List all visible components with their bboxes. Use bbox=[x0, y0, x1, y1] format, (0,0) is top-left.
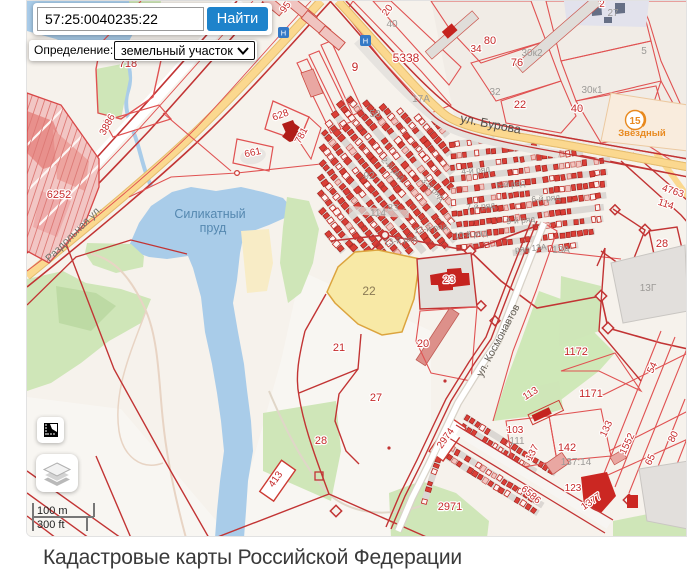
svg-text:15: 15 bbox=[629, 116, 641, 127]
svg-text:103: 103 bbox=[507, 425, 524, 436]
svg-text:5338: 5338 bbox=[393, 51, 420, 65]
svg-text:114: 114 bbox=[370, 208, 386, 219]
svg-text:21: 21 bbox=[333, 342, 345, 354]
svg-text:40: 40 bbox=[386, 19, 398, 30]
svg-text:20: 20 bbox=[417, 338, 429, 350]
svg-text:34: 34 bbox=[470, 44, 482, 55]
svg-text:300 ft: 300 ft bbox=[37, 519, 65, 531]
svg-text:5: 5 bbox=[641, 46, 647, 57]
svg-text:40: 40 bbox=[571, 103, 583, 115]
svg-text:17А: 17А bbox=[412, 94, 430, 105]
svg-text:111: 111 bbox=[509, 436, 525, 447]
svg-text:23: 23 bbox=[443, 274, 455, 286]
svg-text:27: 27 bbox=[607, 8, 619, 19]
svg-text:Н: Н bbox=[363, 37, 368, 46]
svg-text:22: 22 bbox=[362, 284, 376, 298]
svg-text:32: 32 bbox=[489, 87, 501, 98]
svg-text:123: 123 bbox=[565, 483, 582, 494]
svg-text:пруд: пруд bbox=[200, 221, 227, 235]
svg-text:1172: 1172 bbox=[564, 346, 588, 358]
svg-text:22: 22 bbox=[514, 99, 526, 111]
svg-text:27: 27 bbox=[370, 392, 382, 404]
svg-text:9: 9 bbox=[352, 60, 359, 74]
svg-text:2971: 2971 bbox=[438, 501, 462, 513]
svg-text:Н: Н bbox=[281, 29, 286, 38]
svg-text:13А: 13А bbox=[552, 245, 570, 256]
svg-text:50: 50 bbox=[369, 109, 381, 120]
svg-text:92: 92 bbox=[363, 171, 375, 182]
svg-text:30к1: 30к1 bbox=[581, 85, 602, 96]
svg-text:1171: 1171 bbox=[579, 388, 603, 400]
svg-text:28: 28 bbox=[656, 238, 668, 250]
svg-text:30к2: 30к2 bbox=[521, 48, 542, 59]
svg-text:Звёздный: Звёздный bbox=[618, 128, 666, 139]
svg-text:137:14: 137:14 bbox=[561, 457, 592, 468]
svg-text:6252: 6252 bbox=[47, 189, 71, 201]
svg-text:13Г: 13Г bbox=[640, 283, 657, 294]
svg-text:28: 28 bbox=[315, 435, 327, 447]
svg-text:80: 80 bbox=[484, 35, 496, 47]
svg-text:2: 2 bbox=[599, 1, 605, 10]
svg-text:100 m: 100 m bbox=[37, 505, 68, 517]
svg-text:142: 142 bbox=[558, 442, 576, 454]
svg-text:Силикатный: Силикатный bbox=[174, 207, 245, 221]
